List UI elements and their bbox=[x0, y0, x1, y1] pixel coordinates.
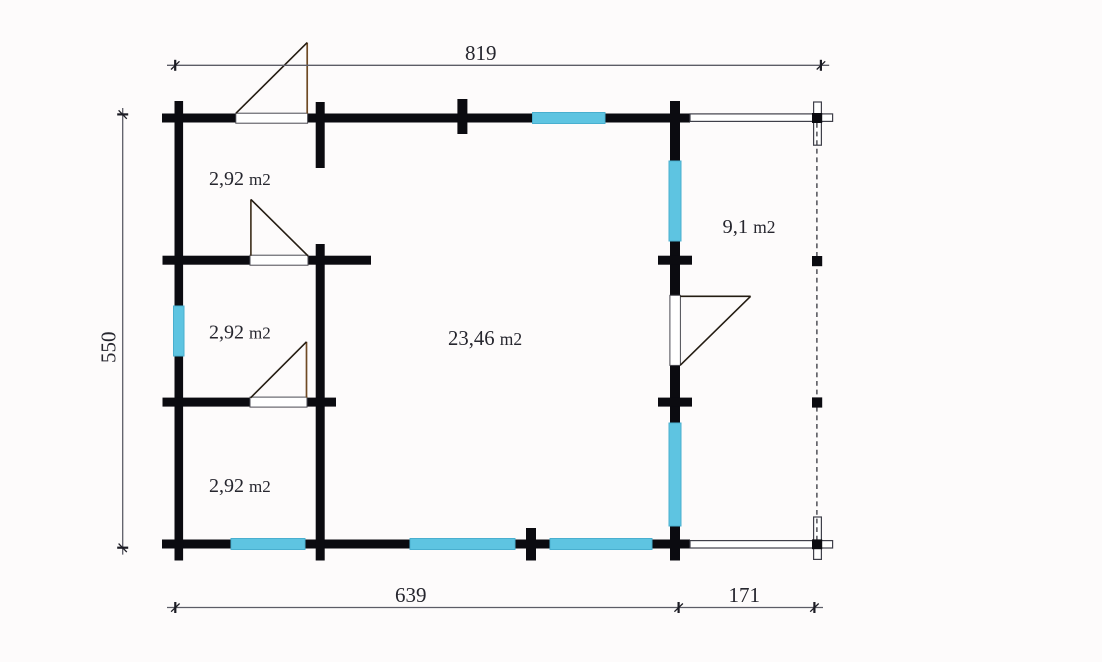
svg-text:23,46 m2: 23,46 m2 bbox=[448, 328, 522, 350]
svg-text:639: 639 bbox=[395, 583, 427, 607]
svg-text:171: 171 bbox=[729, 583, 761, 607]
svg-text:819: 819 bbox=[465, 41, 497, 65]
svg-text:550: 550 bbox=[97, 331, 121, 363]
svg-text:2,92 m2: 2,92 m2 bbox=[209, 475, 271, 497]
svg-text:2,92 m2: 2,92 m2 bbox=[209, 321, 271, 343]
svg-text:9,1 m2: 9,1 m2 bbox=[723, 216, 776, 238]
svg-text:2,92 m2: 2,92 m2 bbox=[209, 168, 271, 190]
